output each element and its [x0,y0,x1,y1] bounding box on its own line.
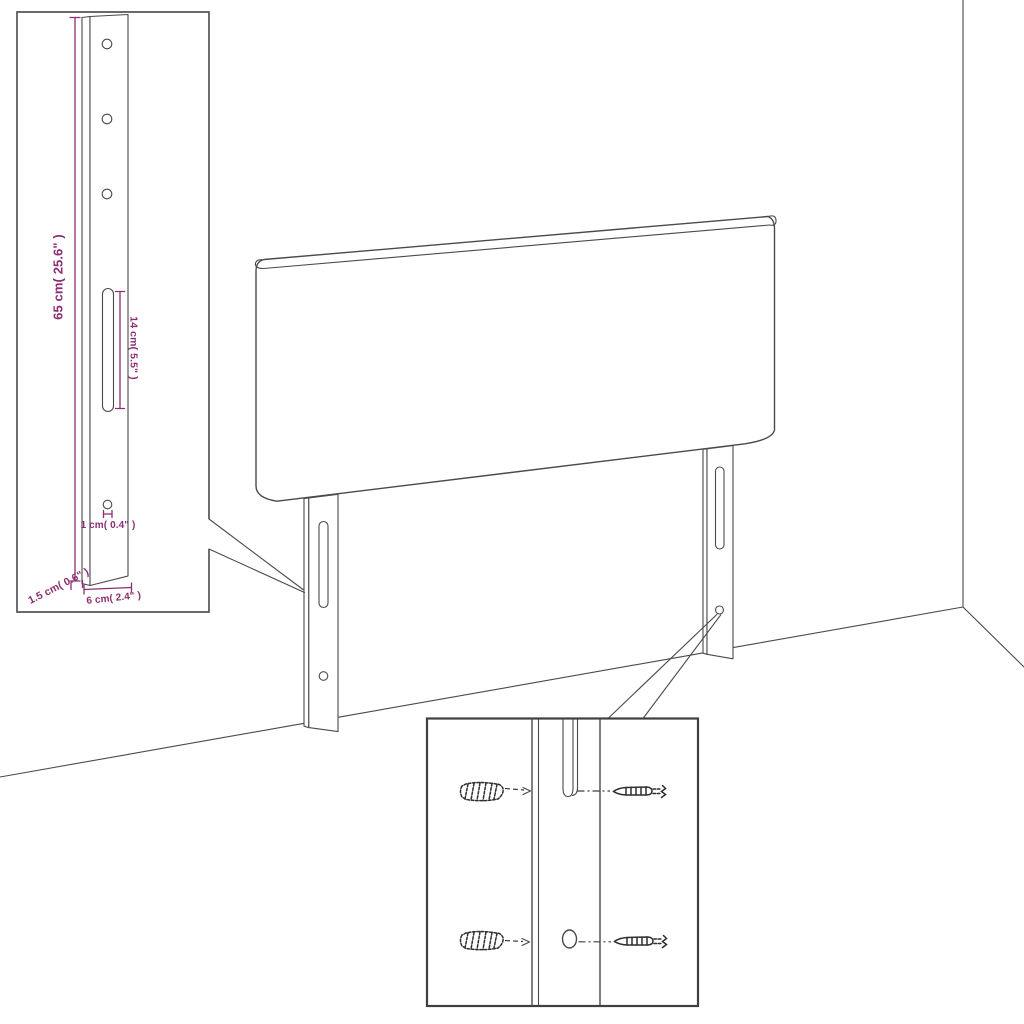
dimension-thickness-label: 1.5 cm( 0.6" ) [26,566,91,607]
headboard-panel [255,216,776,501]
headboard-mounting-diagram: 65 cm( 25.6" ) 14 cm( 5.5" ) 1 cm( 0.4" … [0,0,1024,1024]
left-leg-front-face [309,494,338,731]
dimension-hole-label: 1 cm( 0.4" ) [81,520,136,531]
dimension-slot-label: 14 cm( 5.5" ) [128,316,140,379]
baseboard-left-a [0,723,304,777]
left-mounting-leg [304,494,338,731]
dimension-height: 65 cm( 25.6" ) [51,18,81,582]
inset-wall-fixing-detail [427,719,698,1007]
inset1-leg-front-face [90,15,128,586]
dimension-thickness: 1.5 cm( 0.6" ) [26,566,91,607]
dimension-height-label: 65 cm( 25.6" ) [51,234,66,320]
left-leg-side-face [304,498,309,728]
leader-inset1-lower [209,549,305,593]
right-leg-side-face [703,449,707,655]
headboard-outline [256,217,775,502]
dimension-width: 6 cm( 2.4" ) [84,583,142,607]
diagram-canvas: 65 cm( 25.6" ) 14 cm( 5.5" ) 1 cm( 0.4" … [0,0,1024,1024]
inset-bracket-dimensions: 65 cm( 25.6" ) 14 cm( 5.5" ) 1 cm( 0.4" … [17,12,209,612]
callout-leaders [209,519,721,719]
right-mounting-leg [703,446,733,659]
baseboard-left-b [338,653,703,717]
dimension-width-label: 6 cm( 2.4" ) [86,590,142,607]
right-leg-front-face [707,446,733,659]
leader-inset2-right [643,615,721,719]
inset1-leg-side-face [82,17,90,586]
baseboard-right [733,607,1024,667]
leader-inset1-upper [209,519,303,590]
